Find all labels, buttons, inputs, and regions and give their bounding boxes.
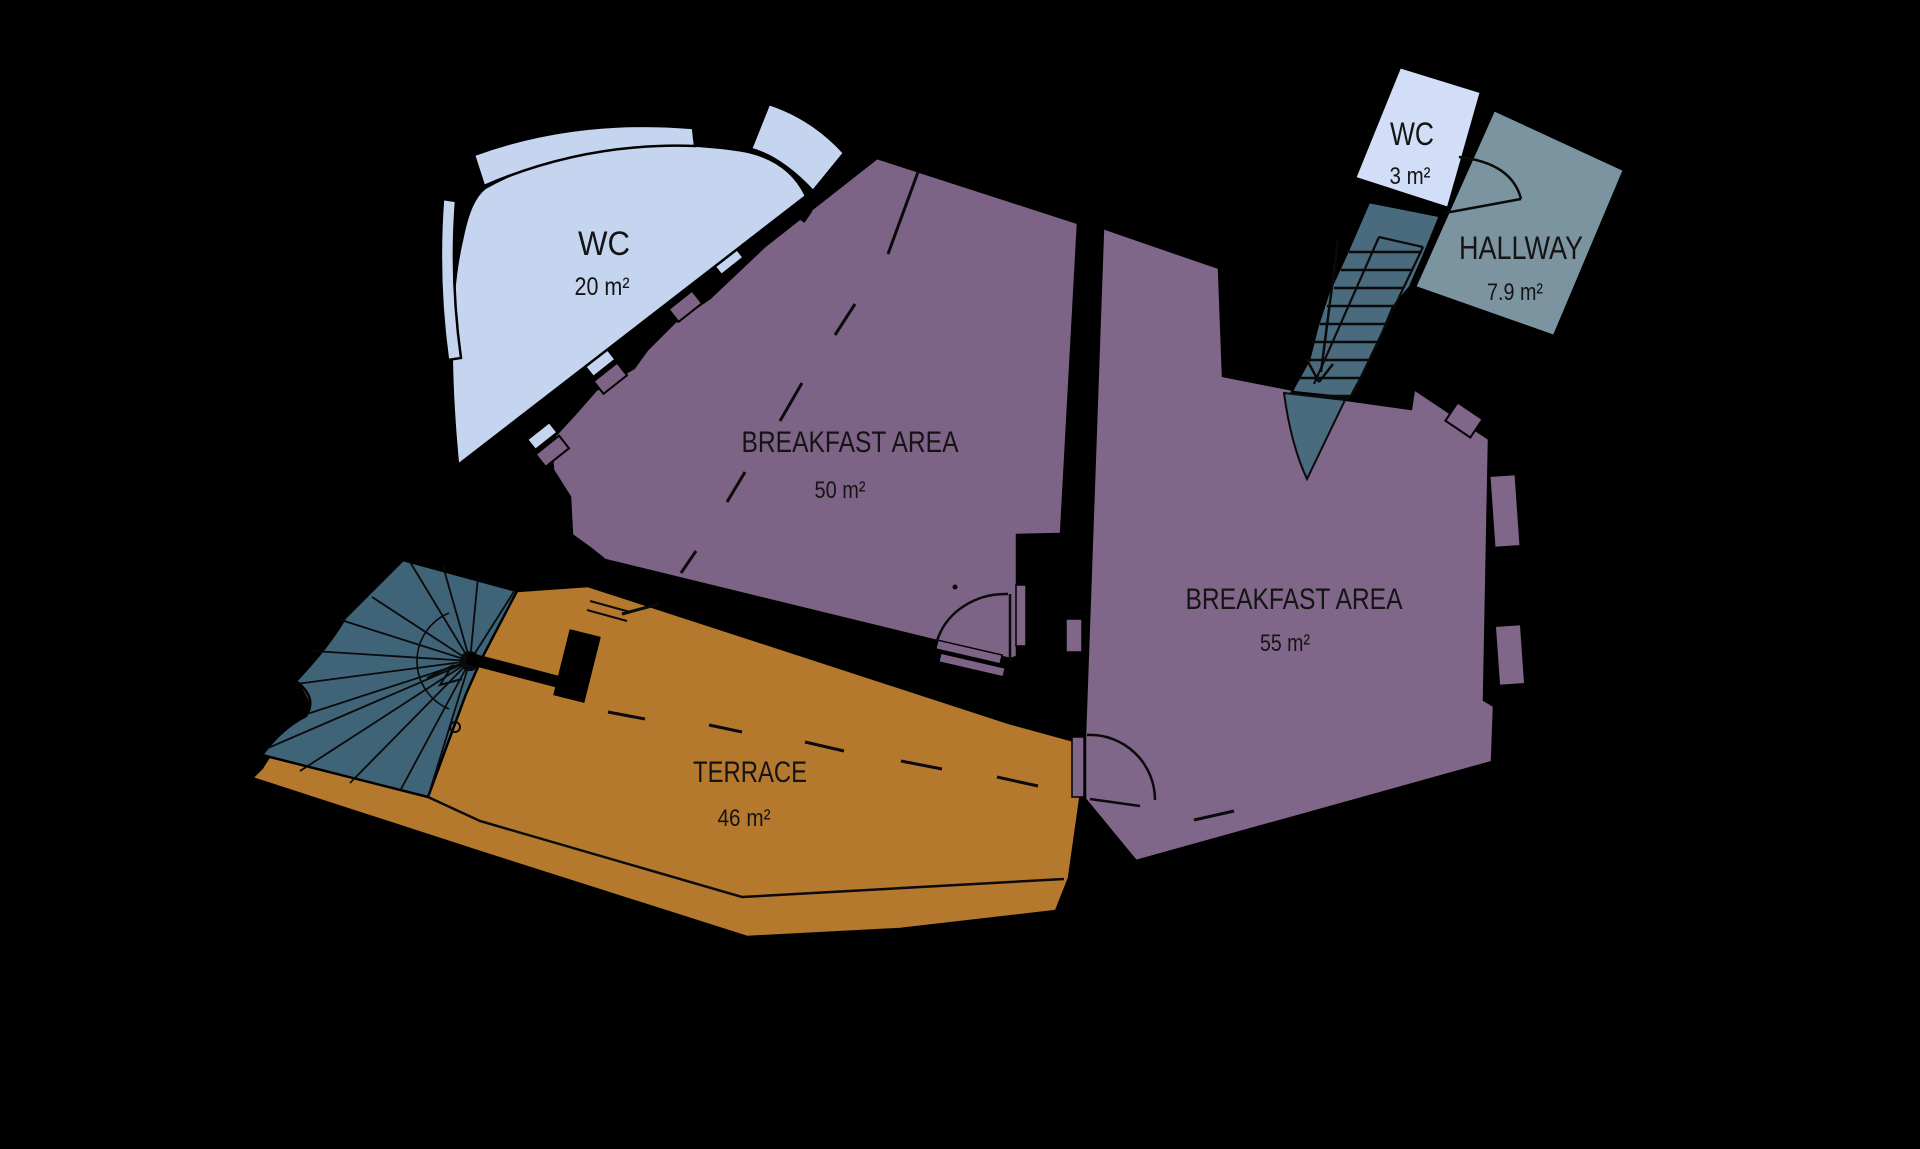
svg-text:50 m²: 50 m² xyxy=(815,477,866,504)
svg-text:20 m²: 20 m² xyxy=(575,273,630,301)
svg-text:7.9 m²: 7.9 m² xyxy=(1487,279,1543,306)
svg-text:BREAKFAST AREA: BREAKFAST AREA xyxy=(742,426,959,459)
svg-text:WC: WC xyxy=(1390,116,1434,152)
svg-text:HALLWAY: HALLWAY xyxy=(1459,230,1583,266)
svg-text:3 m²: 3 m² xyxy=(1390,163,1431,190)
svg-text:BREAKFAST AREA: BREAKFAST AREA xyxy=(1186,583,1403,616)
svg-text:TERRACE: TERRACE xyxy=(693,756,807,789)
svg-text:55 m²: 55 m² xyxy=(1260,630,1310,657)
svg-text:WC: WC xyxy=(578,225,630,263)
svg-text:46 m²: 46 m² xyxy=(718,805,771,832)
